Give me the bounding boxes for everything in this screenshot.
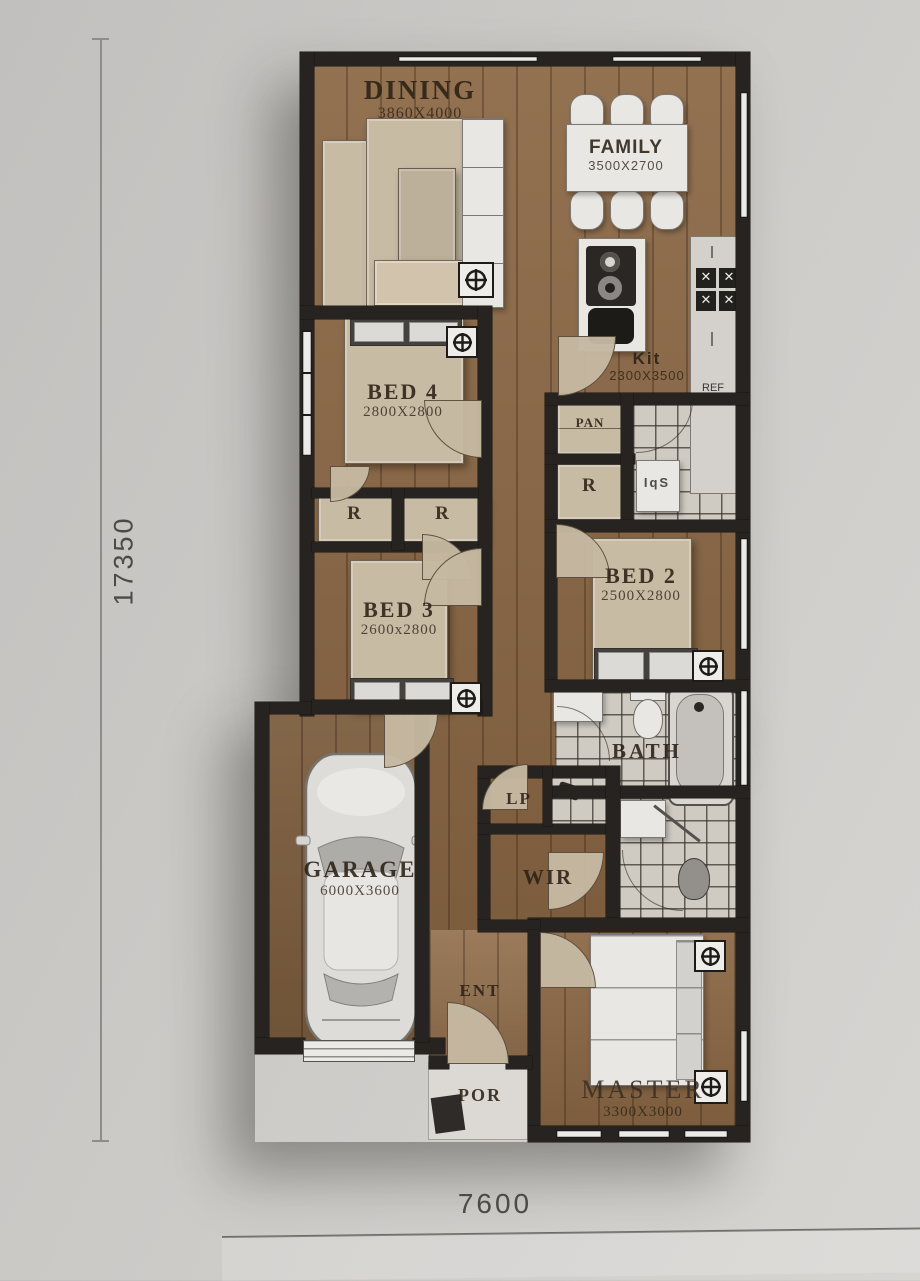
burner-icon: ✕ xyxy=(696,291,716,311)
label-pantry: PAN xyxy=(557,416,623,430)
wall-garage-left xyxy=(255,702,269,1052)
garage-door xyxy=(303,1040,415,1062)
bench-divider-mark xyxy=(711,246,713,258)
left-dimension-label: 17350 xyxy=(109,501,140,621)
label-porch: POR xyxy=(448,1086,512,1105)
wall-entry-front-left xyxy=(429,1056,449,1069)
window-family-right xyxy=(740,92,748,218)
dining-chair xyxy=(570,190,604,230)
label-master: MASTER 3300X3000 xyxy=(568,1076,718,1121)
label-garage: GARAGE 6000X3600 xyxy=(290,858,430,900)
pillow xyxy=(649,652,695,680)
room-name: ENT xyxy=(450,982,510,1000)
window-top-dining xyxy=(398,56,538,62)
window-bed4 xyxy=(302,330,312,456)
room-dims: 2300X3500 xyxy=(592,368,702,384)
dining-chair xyxy=(610,190,644,230)
label-family: FAMILY 3500X2700 xyxy=(566,138,686,174)
bottom-dimension-label: 7600 xyxy=(430,1188,560,1220)
wall-pantry-laundry-divider xyxy=(621,393,633,532)
pillow xyxy=(354,322,404,342)
wall-garage-bottom-left xyxy=(255,1038,305,1054)
ceiling-fan-icon xyxy=(446,326,478,358)
label-bed4: BED 4 2800X2800 xyxy=(348,380,458,421)
mixer-bowl-icon xyxy=(600,252,620,272)
wall-linen-powder-divider xyxy=(543,766,552,826)
screenshot-root: { "scene": {"type": "architectural floor… xyxy=(0,0,920,1280)
sofa-chaise xyxy=(322,140,368,308)
label-dining: DINING 3860X4000 xyxy=(335,76,505,124)
room-name: R xyxy=(557,476,623,496)
wall-dining-bed4 xyxy=(300,306,492,319)
window-master-bottom-1 xyxy=(556,1130,602,1138)
room-dims: 6000X3600 xyxy=(290,882,430,900)
ceiling-fan-icon xyxy=(692,650,724,682)
room-name: BATH xyxy=(592,740,702,762)
label-robe-b: R xyxy=(402,504,484,524)
floor-powder-tiles xyxy=(548,776,608,826)
room-name: PAN xyxy=(557,416,623,430)
backdrop-floor-strip xyxy=(222,1228,920,1281)
mixer-base-icon xyxy=(598,276,622,300)
room-dims: 2600x2800 xyxy=(346,621,452,639)
left-dimension-line xyxy=(100,38,102,1142)
room-name: Kit xyxy=(592,350,702,368)
window-master-bottom-2 xyxy=(618,1130,670,1138)
room-name: R xyxy=(402,504,484,524)
room-name: DINING xyxy=(335,76,505,104)
room-dims: 2800X2800 xyxy=(348,403,458,421)
floor-plan-scene: 17350 7600 ✕ ✕ ✕ ✕ REF xyxy=(0,0,920,1280)
label-bath: BATH xyxy=(592,740,702,762)
left-dimension-tick-bottom xyxy=(92,1140,109,1142)
ceiling-fan-icon xyxy=(694,940,726,972)
label-laundry-tub: IqS xyxy=(636,476,678,490)
label-kitchen: Kit 2300X3500 xyxy=(592,350,702,383)
bath-toilet-bowl xyxy=(633,699,663,739)
label-linen: LP xyxy=(494,790,544,808)
ensuite-vanity xyxy=(620,800,666,838)
left-dimension-tick-top xyxy=(92,38,109,40)
window-master-bottom-3 xyxy=(684,1130,728,1138)
label-wir: WIR xyxy=(500,866,596,888)
bench-divider-mark xyxy=(711,332,713,346)
room-dims: 2500X2800 xyxy=(590,587,692,605)
room-name: POR xyxy=(448,1086,512,1105)
cooktop-burners-icon: ✕ ✕ ✕ ✕ xyxy=(696,268,739,311)
room-dims: 3860X4000 xyxy=(335,104,505,123)
wall-bath-ensuite xyxy=(545,786,750,798)
bathtub-drain xyxy=(694,702,704,712)
room-dims: 3300X3000 xyxy=(568,1103,718,1121)
burner-icon: ✕ xyxy=(696,268,716,288)
label-bed2: BED 2 2500X2800 xyxy=(590,564,692,605)
label-entry: ENT xyxy=(450,982,510,1000)
window-master-right xyxy=(740,1030,748,1102)
label-robe-right: R xyxy=(557,476,623,496)
room-name: LP xyxy=(494,790,544,808)
fixture-label: IqS xyxy=(636,476,678,490)
wall-entry-front-right xyxy=(506,1056,532,1069)
label-robe-a: R xyxy=(318,504,392,524)
wall-master-left xyxy=(528,930,540,1130)
ceiling-fan-icon xyxy=(458,262,494,298)
ceiling-fan-icon xyxy=(450,682,482,714)
window-top-family xyxy=(612,56,702,62)
label-bed3: BED 3 2600x2800 xyxy=(346,598,452,639)
room-name: FAMILY xyxy=(566,138,686,158)
room-name: MASTER xyxy=(568,1076,718,1103)
room-name: WIR xyxy=(500,866,596,888)
room-name: R xyxy=(318,504,392,524)
wall-wir-right xyxy=(606,766,620,932)
room-name: BED 2 xyxy=(590,564,692,587)
bed2-footer xyxy=(594,648,698,684)
sofa-ottoman xyxy=(374,260,464,306)
fridge-label: REF xyxy=(690,382,736,394)
window-bed2-right xyxy=(740,538,748,650)
room-name: BED 4 xyxy=(348,380,458,403)
room-dims: 3500X2700 xyxy=(566,158,686,174)
pillow xyxy=(598,652,644,680)
wall-master-top xyxy=(528,918,750,932)
window-bath-right xyxy=(740,690,748,786)
dining-chair xyxy=(650,190,684,230)
wall-kitchen-pantry xyxy=(545,393,750,405)
room-name: BED 3 xyxy=(346,598,452,621)
room-name: GARAGE xyxy=(290,858,430,882)
